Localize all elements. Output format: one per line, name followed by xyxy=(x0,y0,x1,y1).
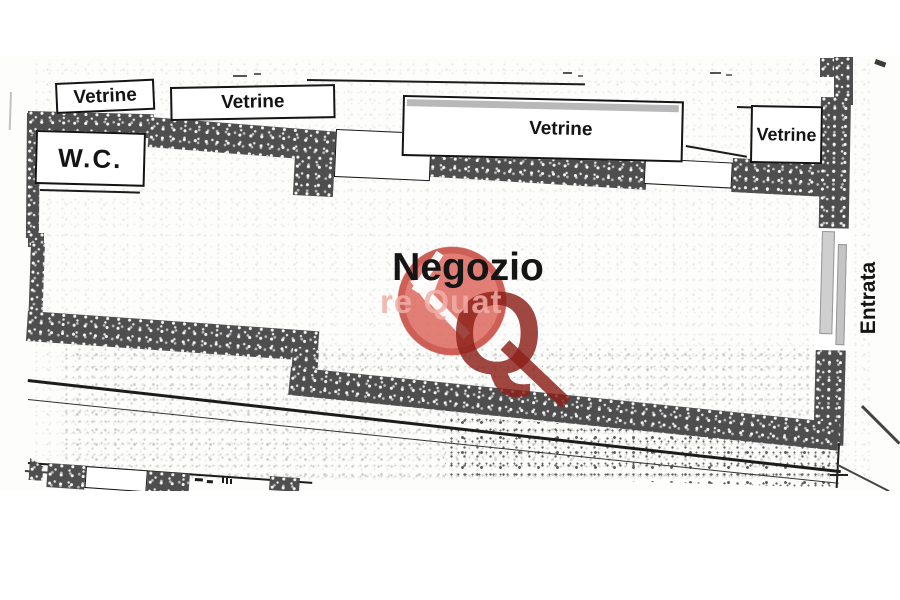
vetrine-box-3: Vetrine xyxy=(402,95,684,162)
boundary-block-3 xyxy=(269,476,300,492)
vetrine-label-4: Vetrine xyxy=(756,124,816,146)
wall-right-upper xyxy=(819,97,851,235)
boundary-block-1 xyxy=(46,463,86,490)
boundary-tick-3 xyxy=(230,479,232,484)
negozio-label: Negozio xyxy=(337,243,599,293)
vetrine3-glass-stripe xyxy=(407,99,679,112)
floor-plan: Vetrine Vetrine Vetrine Vetrine W.C. Q r… xyxy=(0,0,900,600)
right-cross-tick xyxy=(830,474,848,476)
door-opening-in-band xyxy=(644,158,733,189)
entrance-door-leaf-outer xyxy=(819,231,835,334)
top-right-mark xyxy=(874,59,886,67)
scan-cut-top xyxy=(0,0,900,56)
boundary-tick-2 xyxy=(226,478,228,484)
wall-pillar-mid-left xyxy=(293,155,335,197)
boundary-dash-2 xyxy=(207,480,213,483)
vetrine-box-1: Vetrine xyxy=(55,79,155,114)
vetrine-box-2: Vetrine xyxy=(170,84,336,121)
wc-label: W.C. xyxy=(58,142,123,175)
scan-cut-bottom xyxy=(0,491,900,600)
entrata-label: Entrata xyxy=(854,253,884,343)
vetrine-label-1: Vetrine xyxy=(73,84,137,109)
wc-room: W.C. xyxy=(35,130,146,187)
vetrine-box-4: Vetrine xyxy=(750,105,823,164)
vetrine-label-3: Vetrine xyxy=(529,117,593,140)
boundary-tick-1 xyxy=(222,477,224,483)
wall-left-lower xyxy=(28,243,45,315)
boundary-open-bay xyxy=(84,466,147,492)
scan-line-left-faint xyxy=(9,92,12,130)
boundary-dash-1 xyxy=(195,478,203,482)
vetrine-label-2: Vetrine xyxy=(221,91,285,114)
